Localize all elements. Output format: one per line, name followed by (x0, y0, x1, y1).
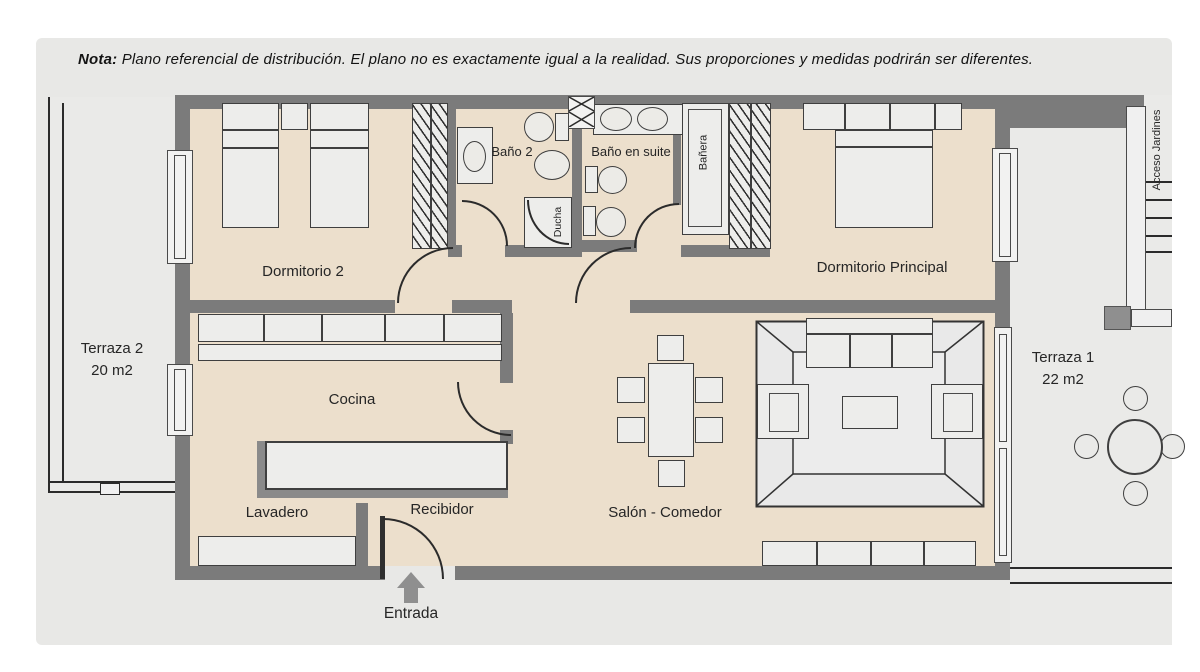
cocina-label: Cocina (302, 391, 402, 408)
sideboard-divider (816, 542, 818, 565)
entrada-arrow-icon (397, 572, 425, 588)
stairs-tread-5 (1146, 251, 1172, 253)
cabinet-divider (384, 315, 386, 341)
terraza1-table (1107, 419, 1163, 475)
disclaimer-note: Nota: Plano referencial de distribución.… (78, 51, 1138, 68)
wall-bottom-left (175, 566, 385, 580)
bed-fold-line (836, 146, 932, 148)
dining-chair-right-1 (695, 377, 723, 403)
cocina-counter (198, 344, 502, 361)
headboard-divider (934, 104, 936, 129)
bano-en-suite-label: Baño en suite (566, 144, 696, 159)
window-pane (174, 369, 186, 431)
note-prefix: Nota: (78, 51, 117, 68)
entrada-arrow-shaft (404, 588, 418, 603)
recibidor-label: Recibidor (382, 501, 502, 518)
bano2-toilet-bowl (524, 112, 554, 142)
dorm2-headboard-right (310, 103, 369, 130)
bano2-label: Baño 2 (472, 144, 552, 159)
armchair-right (931, 384, 983, 439)
wall-salon-north (630, 300, 995, 313)
ensuite-toilet-bowl (598, 166, 627, 194)
ensuite-sink-1 (600, 107, 632, 131)
wall-dorm2-south (190, 300, 395, 313)
dorm2-wardrobe (412, 103, 448, 249)
wall-bottom-right (455, 566, 1010, 580)
island-wall-bottom (257, 490, 508, 498)
dormitorio-principal-label: Dormitorio Principal (797, 259, 967, 276)
terraza2-label: Terraza 2 (52, 340, 172, 357)
dining-chair-bottom (658, 460, 685, 487)
armchair-seat (769, 393, 799, 432)
dining-chair-top (657, 335, 684, 361)
terraza1-chair-top (1123, 386, 1148, 411)
dining-table (648, 363, 694, 457)
armchair-left (757, 384, 809, 439)
terraza2-area (48, 97, 177, 491)
window-pane (999, 153, 1011, 257)
stairs-tread-4 (1146, 235, 1172, 237)
cocina-cabinet-row (198, 314, 502, 342)
sliding-door-pane-lower (999, 448, 1007, 556)
ensuite-bidet-tank (583, 206, 596, 236)
sideboard-divider (923, 542, 925, 565)
terraza1-area (1010, 95, 1172, 645)
terraza1-chair-bottom (1123, 481, 1148, 506)
wall-top-right-band (1010, 95, 1144, 128)
terraza1-chair-left (1074, 434, 1099, 459)
window-dormitorio2 (167, 150, 193, 264)
sideboard-divider (870, 542, 872, 565)
bathroom-vent-window (568, 96, 595, 129)
ensuite-sink-2 (637, 107, 668, 131)
window-pane (174, 155, 186, 259)
lavadero-counter (198, 536, 356, 566)
dormitorio2-label: Dormitorio 2 (218, 263, 388, 280)
dorm2-nightstand (281, 103, 308, 130)
note-text: Plano referencial de distribución. El pl… (117, 51, 1033, 68)
entrada-label: Entrada (351, 605, 471, 623)
terraza1-area-label: 22 m2 (1003, 371, 1123, 388)
headboard-divider (889, 104, 891, 129)
cabinet-divider (263, 315, 265, 341)
principal-headboard (803, 103, 962, 130)
sofa-back-line (807, 333, 932, 335)
coffee-table (842, 396, 898, 429)
ensuite-bidet-bowl (596, 207, 626, 237)
armchair-seat (943, 393, 973, 432)
terraza1-label: Terraza 1 (1003, 349, 1123, 366)
terraza1-wall-strip (1126, 106, 1146, 312)
vent-window-x-glyph (569, 97, 594, 127)
terraza1-step (1131, 309, 1172, 327)
dining-chair-right-2 (695, 417, 723, 443)
wardrobe-rail-line (750, 104, 752, 248)
sofa-cushion-divider (849, 333, 851, 367)
dorm2-twin-bed-1 (222, 130, 279, 228)
banera-label: Bañera (698, 128, 711, 178)
wall-corridor-south (452, 300, 512, 313)
principal-wardrobe (729, 103, 771, 249)
wall-closet-bano2 (448, 109, 456, 247)
floor-plan-page: Nota: Plano referencial de distribución.… (0, 0, 1200, 672)
terraza1-rail-line-2 (1010, 582, 1172, 584)
ducha-label: Ducha (552, 201, 564, 243)
sofa-cushion-divider (891, 333, 893, 367)
acceso-jardines-label: Acceso Jardines (1151, 95, 1165, 205)
bano2-toilet-tank (555, 113, 569, 141)
headboard-divider (844, 104, 846, 129)
terraza2-rail-line (62, 103, 64, 481)
stairs-tread-3 (1146, 217, 1172, 219)
window-dormitorio-principal (992, 148, 1018, 262)
wall-lavadero-east (356, 503, 368, 580)
salon-comedor-label: Salón - Comedor (575, 504, 755, 521)
terraza2-post (100, 483, 120, 495)
bed-fold-line (311, 147, 368, 149)
cabinet-divider (443, 315, 445, 341)
dining-chair-left-2 (617, 417, 645, 443)
ensuite-toilet-tank (585, 166, 598, 193)
terraza2-area-label: 20 m2 (52, 362, 172, 379)
terraza1-planter-dark (1104, 306, 1131, 330)
cabinet-divider (321, 315, 323, 341)
dorm2-headboard-left (222, 103, 279, 130)
lavadero-label: Lavadero (217, 504, 337, 521)
sideboard (762, 541, 976, 566)
dorm2-twin-bed-2 (310, 130, 369, 228)
cocina-island-counter (265, 441, 508, 490)
terraza1-rail-line-1 (1010, 567, 1172, 569)
bed-fold-line (223, 147, 278, 149)
dining-chair-left-1 (617, 377, 645, 403)
terraza1-chair-right (1160, 434, 1185, 459)
principal-double-bed (835, 130, 933, 228)
wardrobe-rail-line (430, 104, 432, 248)
sofa (806, 318, 933, 368)
